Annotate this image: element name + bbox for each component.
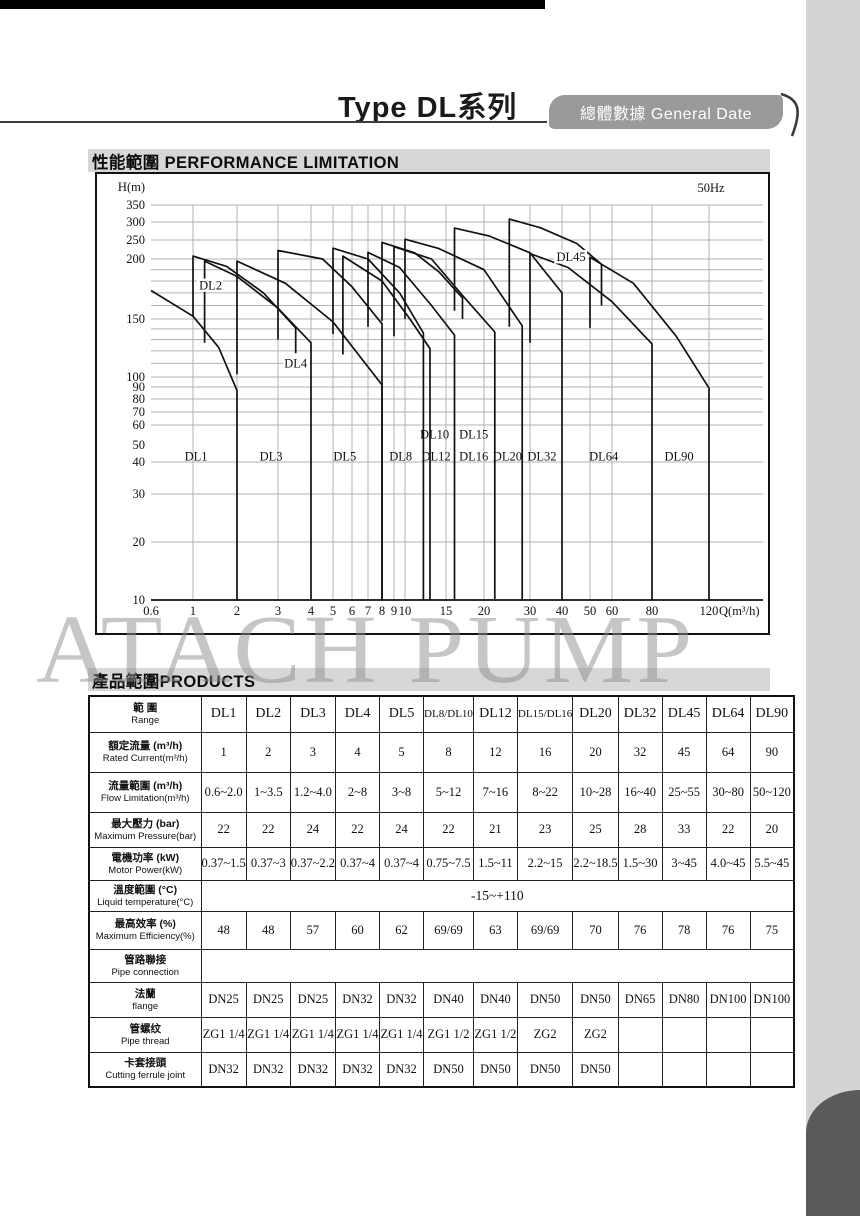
y-axis-title: H(m) <box>118 180 145 194</box>
y-tick-label: 300 <box>126 215 145 229</box>
data-cell: 7~16 <box>473 772 517 812</box>
row-label-7-en: flange <box>90 1001 201 1012</box>
row-label-4: 溫度範圍 (°C)Liquid temperature(°C) <box>89 880 201 911</box>
row-label-1: 流量範圍 (m³/h)Flow Limitation(m³/h) <box>89 772 201 812</box>
data-cell: 0.37~4 <box>380 847 424 880</box>
column-header-DL3: DL3 <box>290 696 335 732</box>
data-cell: 90 <box>750 732 794 772</box>
data-cell: ZG1 1/4 <box>290 1017 335 1052</box>
chart-label-DL45: DL45 <box>556 250 585 264</box>
span-cell <box>201 949 794 982</box>
data-cell: DN32 <box>201 1052 246 1087</box>
data-cell: 21 <box>473 812 517 847</box>
row-label-9-en: Cutting ferrule joint <box>90 1070 201 1081</box>
data-cell: 4.0~45 <box>706 847 750 880</box>
data-cell <box>618 1052 662 1087</box>
row-label-2-en: Maximum Pressure(bar) <box>90 831 201 842</box>
chart-label-DL12: DL12 <box>422 449 451 463</box>
data-cell: ZG1 1/2 <box>424 1017 474 1052</box>
row-label-4-en: Liquid temperature(°C) <box>90 897 201 908</box>
data-cell: 69/69 <box>517 911 572 949</box>
data-cell: 0.6~2.0 <box>201 772 246 812</box>
data-cell: ZG2 <box>573 1017 618 1052</box>
row-label-8-en: Pipe thread <box>90 1036 201 1047</box>
x-tick-label: 120 <box>700 604 719 618</box>
row-label-0-en: Rated Current(m³/h) <box>90 753 201 764</box>
data-cell: ZG1 1/2 <box>473 1017 517 1052</box>
data-cell: 75 <box>750 911 794 949</box>
envelope-DL8 <box>333 248 423 600</box>
data-cell: 16~40 <box>618 772 662 812</box>
row-label-2: 最大壓力 (bar)Maximum Pressure(bar) <box>89 812 201 847</box>
chart-label-DL3: DL3 <box>260 449 283 463</box>
data-cell: DN50 <box>517 1052 572 1087</box>
data-cell: 76 <box>618 911 662 949</box>
y-tick-label: 60 <box>133 418 146 432</box>
data-cell <box>618 1017 662 1052</box>
column-header-DL12: DL12 <box>473 696 517 732</box>
data-cell: 1 <box>201 732 246 772</box>
data-cell: 2.2~18.5 <box>573 847 618 880</box>
y-tick-label: 50 <box>133 438 146 452</box>
data-cell: 1.5~30 <box>618 847 662 880</box>
data-cell: 16 <box>517 732 572 772</box>
data-cell: 48 <box>246 911 290 949</box>
data-cell: 57 <box>290 911 335 949</box>
data-cell: DN50 <box>517 982 572 1017</box>
data-cell <box>662 1052 706 1087</box>
x-tick-label: 15 <box>440 604 453 618</box>
data-cell: 76 <box>706 911 750 949</box>
data-cell: 8 <box>424 732 474 772</box>
x-tick-label: 4 <box>308 604 315 618</box>
chart-frame: 1020304050607080901001502002503003500.61… <box>95 172 770 635</box>
data-cell: DN65 <box>618 982 662 1017</box>
column-header-DL4: DL4 <box>336 696 380 732</box>
span-cell: -15~+110 <box>201 880 794 911</box>
column-header-DL64: DL64 <box>706 696 750 732</box>
column-header-DL90: DL90 <box>750 696 794 732</box>
data-cell: DN32 <box>380 1052 424 1087</box>
chart-label-DL16: DL16 <box>459 449 488 463</box>
y-tick-label: 150 <box>126 312 145 326</box>
data-cell: DN100 <box>750 982 794 1017</box>
data-cell: 4 <box>336 732 380 772</box>
y-tick-label: 20 <box>133 535 146 549</box>
performance-section-title: 性能範圍 PERFORMANCE LIMITATION <box>92 149 399 173</box>
x-tick-label: 9 <box>391 604 397 618</box>
data-cell: DN32 <box>336 1052 380 1087</box>
data-cell: DN100 <box>706 982 750 1017</box>
performance-section-bar: 性能範圍 PERFORMANCE LIMITATION <box>88 149 770 172</box>
data-cell: 5~12 <box>424 772 474 812</box>
x-tick-label: 5 <box>330 604 336 618</box>
chart-label-DL10: DL10 <box>420 428 449 442</box>
data-cell: ZG2 <box>517 1017 572 1052</box>
row-label-5: 最高效率 (%)Maximum Efficiency(%) <box>89 911 201 949</box>
data-cell: 1.5~11 <box>473 847 517 880</box>
row-label-8-zh: 管螺纹 <box>90 1023 201 1036</box>
data-cell: 25~55 <box>662 772 706 812</box>
data-cell: 33 <box>662 812 706 847</box>
data-cell: 22 <box>246 812 290 847</box>
row-label-4-zh: 溫度範圍 (°C) <box>90 884 201 897</box>
x-axis-title: Q(m³/h) <box>719 604 760 618</box>
y-tick-label: 100 <box>126 370 145 384</box>
chart-label-DL64: DL64 <box>589 449 619 463</box>
row-label-9-zh: 卡套接頭 <box>90 1057 201 1070</box>
envelope-DL4 <box>237 261 382 600</box>
data-cell: 1.2~4.0 <box>290 772 335 812</box>
table-row: 額定流量 (m³/h)Rated Current(m³/h)1234581216… <box>89 732 794 772</box>
x-tick-label: 1 <box>190 604 196 618</box>
products-section-bar: 產品範圍PRODUCTS <box>88 668 770 691</box>
table-header-row: 範 圍RangeDL1DL2DL3DL4DL5DL8/DL10DL12DL15/… <box>89 696 794 732</box>
products-table: 範 圍RangeDL1DL2DL3DL4DL5DL8/DL10DL12DL15/… <box>88 695 795 1088</box>
chart-label-DL90: DL90 <box>665 449 694 463</box>
row-label-8: 管螺纹Pipe thread <box>89 1017 201 1052</box>
data-cell: 22 <box>424 812 474 847</box>
data-cell: 0.37~4 <box>336 847 380 880</box>
table-row: 最大壓力 (bar)Maximum Pressure(bar)222224222… <box>89 812 794 847</box>
data-cell: 0.37~1.5 <box>201 847 246 880</box>
data-cell: DN25 <box>246 982 290 1017</box>
frequency-label: 50Hz <box>697 181 725 195</box>
data-cell: 3~45 <box>662 847 706 880</box>
row-label-3: 電機功率 (kW)Motor Power(kW) <box>89 847 201 880</box>
data-cell: DN50 <box>573 982 618 1017</box>
x-tick-label: 50 <box>584 604 597 618</box>
x-tick-label: 0.6 <box>143 604 159 618</box>
data-cell: 2.2~15 <box>517 847 572 880</box>
data-cell: 48 <box>201 911 246 949</box>
data-cell: ZG1 1/4 <box>201 1017 246 1052</box>
x-tick-label: 7 <box>365 604 371 618</box>
chart-label-DL15: DL15 <box>459 428 488 442</box>
chart-label-DL8: DL8 <box>389 449 412 463</box>
row-label-5-zh: 最高效率 (%) <box>90 918 201 931</box>
row-label-0-zh: 額定流量 (m³/h) <box>90 740 201 753</box>
table-row: 最高效率 (%)Maximum Efficiency(%)48485760626… <box>89 911 794 949</box>
data-cell: 3 <box>290 732 335 772</box>
x-tick-label: 60 <box>606 604 619 618</box>
x-tick-label: 2 <box>234 604 240 618</box>
chart-label-DL2: DL2 <box>199 279 222 293</box>
data-cell: 0.37~2.2 <box>290 847 335 880</box>
data-cell: 8~22 <box>517 772 572 812</box>
y-tick-label: 200 <box>126 252 145 266</box>
data-cell: 64 <box>706 732 750 772</box>
corner-cell-zh: 範 圍 <box>90 702 201 715</box>
data-cell: DN32 <box>290 1052 335 1087</box>
data-cell: 22 <box>201 812 246 847</box>
data-cell: 1~3.5 <box>246 772 290 812</box>
data-cell: DN40 <box>473 982 517 1017</box>
row-label-7-zh: 法蘭 <box>90 988 201 1001</box>
envelope-DL90 <box>590 257 709 600</box>
data-cell: 22 <box>336 812 380 847</box>
chart-label-DL32: DL32 <box>527 449 556 463</box>
column-header-DL5: DL5 <box>380 696 424 732</box>
column-header-DL1: DL1 <box>201 696 246 732</box>
row-label-6: 管路聯接Pipe connection <box>89 949 201 982</box>
data-cell: 5.5~45 <box>750 847 794 880</box>
data-cell: 24 <box>380 812 424 847</box>
data-cell: DN50 <box>424 1052 474 1087</box>
row-label-1-en: Flow Limitation(m³/h) <box>90 793 201 804</box>
data-cell: 2~8 <box>336 772 380 812</box>
chart-label-DL1: DL1 <box>185 449 208 463</box>
general-data-badge: 總體數據 General Date <box>549 95 783 129</box>
data-cell: 50~120 <box>750 772 794 812</box>
table-row: 法蘭flangeDN25DN25DN25DN32DN32DN40DN40DN50… <box>89 982 794 1017</box>
envelope-DL10 <box>343 256 430 600</box>
data-cell: 20 <box>750 812 794 847</box>
y-tick-label: 250 <box>126 233 145 247</box>
data-cell: DN32 <box>336 982 380 1017</box>
data-cell: DN80 <box>662 982 706 1017</box>
table-row: 管路聯接Pipe connection <box>89 949 794 982</box>
data-cell: 3~8 <box>380 772 424 812</box>
table-row: 流量範圍 (m³/h)Flow Limitation(m³/h)0.6~2.01… <box>89 772 794 812</box>
data-cell: DN25 <box>201 982 246 1017</box>
row-label-1-zh: 流量範圍 (m³/h) <box>90 780 201 793</box>
data-cell: 60 <box>336 911 380 949</box>
y-tick-label: 350 <box>126 198 145 212</box>
data-cell <box>706 1052 750 1087</box>
row-label-2-zh: 最大壓力 (bar) <box>90 818 201 831</box>
data-cell <box>706 1017 750 1052</box>
x-tick-label: 6 <box>349 604 355 618</box>
data-cell: ZG1 1/4 <box>336 1017 380 1052</box>
data-cell: 5 <box>380 732 424 772</box>
y-tick-label: 30 <box>133 487 146 501</box>
envelope-DL32 <box>455 228 563 600</box>
data-cell: DN40 <box>424 982 474 1017</box>
data-cell: DN50 <box>573 1052 618 1087</box>
top-black-bar <box>0 0 545 9</box>
row-label-3-en: Motor Power(kW) <box>90 865 201 876</box>
table-row: 電機功率 (kW)Motor Power(kW)0.37~1.50.37~30.… <box>89 847 794 880</box>
data-cell: 25 <box>573 812 618 847</box>
data-cell: 62 <box>380 911 424 949</box>
data-cell: DN32 <box>380 982 424 1017</box>
table-row: 管螺纹Pipe threadZG1 1/4ZG1 1/4ZG1 1/4ZG1 1… <box>89 1017 794 1052</box>
x-tick-label: 10 <box>399 604 412 618</box>
page-title: Type DL系列 <box>338 84 558 126</box>
data-cell: 28 <box>618 812 662 847</box>
data-cell: 20 <box>573 732 618 772</box>
data-cell <box>750 1052 794 1087</box>
data-cell: 23 <box>517 812 572 847</box>
y-tick-label: 70 <box>133 405 146 419</box>
data-cell: ZG1 1/4 <box>380 1017 424 1052</box>
envelope-DL12 <box>368 252 455 600</box>
table-row: 溫度範圍 (°C)Liquid temperature(°C)-15~+110 <box>89 880 794 911</box>
row-label-5-en: Maximum Efficiency(%) <box>90 931 201 942</box>
envelope-DL2 <box>193 256 296 353</box>
column-header-DL2: DL2 <box>246 696 290 732</box>
x-tick-label: 80 <box>646 604 659 618</box>
envelope-DL1 <box>151 291 237 601</box>
envelope-DL45 <box>509 219 601 327</box>
data-cell: 0.75~7.5 <box>424 847 474 880</box>
envelope-DL16 <box>394 247 495 600</box>
corner-cell-en: Range <box>90 715 201 726</box>
column-header-DL45: DL45 <box>662 696 706 732</box>
envelope-DL3 <box>205 261 311 600</box>
data-cell: 0.37~3 <box>246 847 290 880</box>
data-cell: DN50 <box>473 1052 517 1087</box>
data-cell: 32 <box>618 732 662 772</box>
row-label-6-zh: 管路聯接 <box>90 954 201 967</box>
y-tick-label: 40 <box>133 455 146 469</box>
data-cell: 22 <box>706 812 750 847</box>
right-margin-band <box>806 0 860 1216</box>
column-header-DL32: DL32 <box>618 696 662 732</box>
data-cell: 12 <box>473 732 517 772</box>
products-section-title: 產品範圍PRODUCTS <box>92 668 255 692</box>
title-underline <box>0 121 547 123</box>
x-tick-label: 8 <box>379 604 385 618</box>
page-corner-block <box>806 1090 860 1216</box>
column-header-DL8-DL10: DL8/DL10 <box>424 696 474 732</box>
column-header-DL20: DL20 <box>573 696 618 732</box>
table-row: 卡套接頭Cutting ferrule jointDN32DN32DN32DN3… <box>89 1052 794 1087</box>
chart-label-DL4: DL4 <box>284 356 308 370</box>
data-cell: 63 <box>473 911 517 949</box>
column-header-DL15-DL16: DL15/DL16 <box>517 696 572 732</box>
corner-cell: 範 圍Range <box>89 696 201 732</box>
chart-label-DL5: DL5 <box>333 449 356 463</box>
data-cell <box>662 1017 706 1052</box>
data-cell: 30~80 <box>706 772 750 812</box>
data-cell: 2 <box>246 732 290 772</box>
performance-chart: 1020304050607080901001502002503003500.61… <box>97 174 768 633</box>
row-label-9: 卡套接頭Cutting ferrule joint <box>89 1052 201 1087</box>
x-tick-label: 20 <box>478 604 491 618</box>
row-label-7: 法蘭flange <box>89 982 201 1017</box>
chart-label-DL20: DL20 <box>493 449 522 463</box>
data-cell: 69/69 <box>424 911 474 949</box>
x-tick-label: 3 <box>275 604 281 618</box>
data-cell: DN25 <box>290 982 335 1017</box>
data-cell: 24 <box>290 812 335 847</box>
y-tick-label: 80 <box>133 392 146 406</box>
data-cell: 70 <box>573 911 618 949</box>
row-label-3-zh: 電機功率 (kW) <box>90 852 201 865</box>
row-label-6-en: Pipe connection <box>90 967 201 978</box>
data-cell: 10~28 <box>573 772 618 812</box>
data-cell <box>750 1017 794 1052</box>
badge-hook-icon <box>779 92 805 138</box>
row-label-0: 額定流量 (m³/h)Rated Current(m³/h) <box>89 732 201 772</box>
x-tick-label: 40 <box>556 604 569 618</box>
data-cell: ZG1 1/4 <box>246 1017 290 1052</box>
x-tick-label: 30 <box>524 604 537 618</box>
data-cell: 45 <box>662 732 706 772</box>
data-cell: 78 <box>662 911 706 949</box>
data-cell: DN32 <box>246 1052 290 1087</box>
